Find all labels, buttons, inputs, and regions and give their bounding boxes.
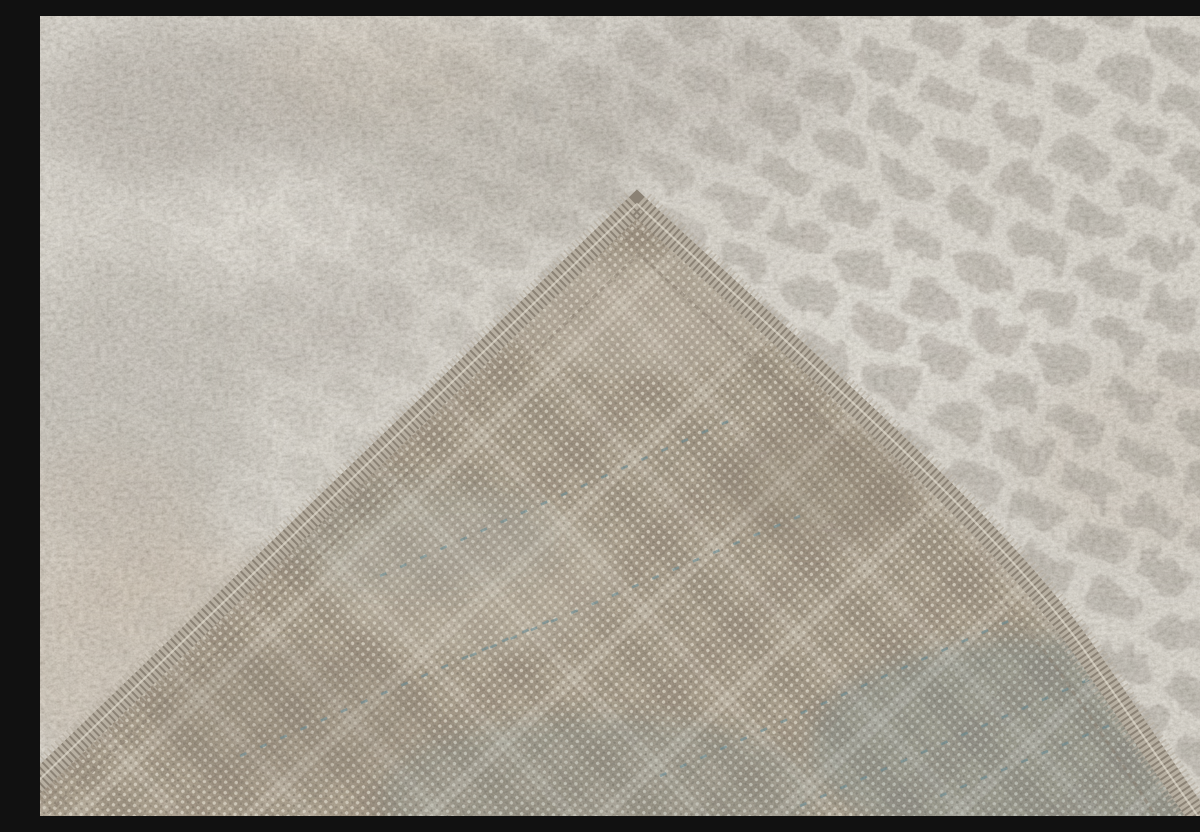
rug-photo-canvas [40, 16, 1200, 816]
rug-corner-photo: Close-up photo of a rug corner folded ov… [40, 16, 1200, 816]
